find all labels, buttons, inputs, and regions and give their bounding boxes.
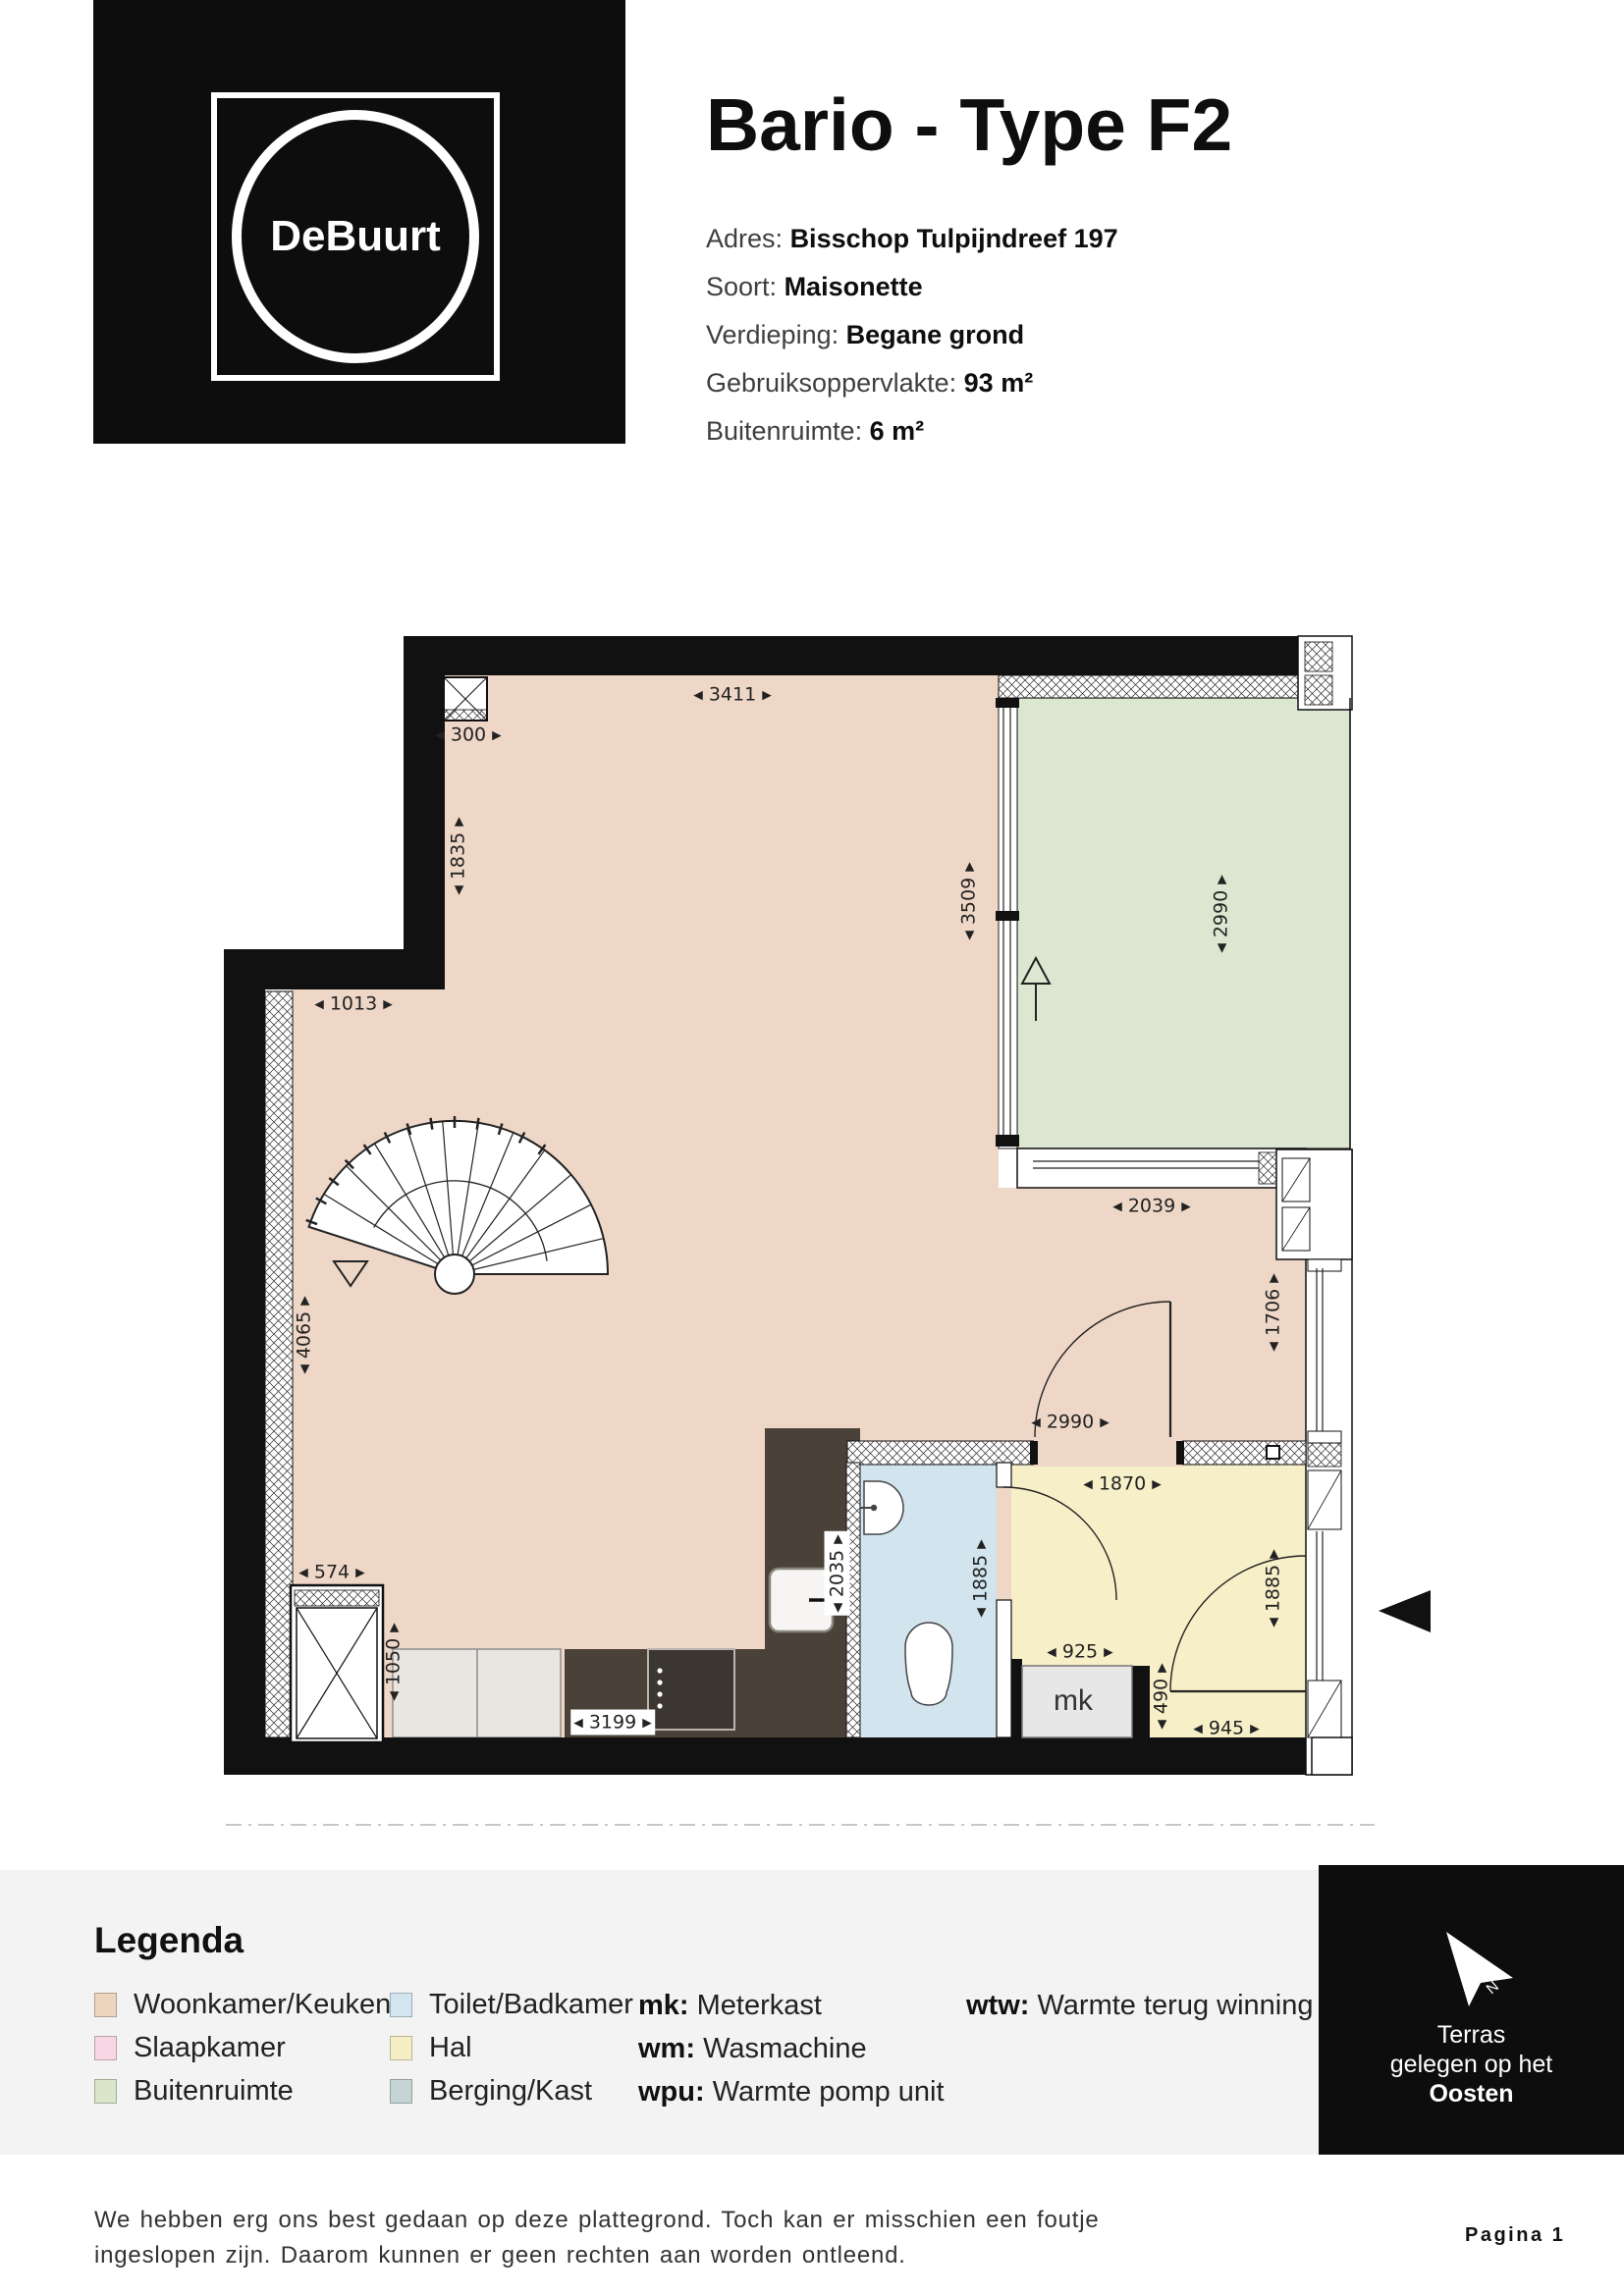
toilet-icon [905,1623,952,1705]
kitchen-cabinets [393,1649,561,1737]
dimension-label: ◂ 1870 ▸ [1083,1473,1162,1495]
dimension-label: ◂ 1013 ▸ [314,993,393,1015]
dimension-label: ◂ 300 ▸ [435,724,502,746]
legend-swatch [390,1993,412,2017]
legend-item-berging: Berging/Kast [390,2074,592,2108]
page-number: Pagina 1 [1465,2224,1565,2247]
orientation-text: Terras gelegen op het Oosten [1319,2020,1624,2109]
dimension-label: ◂ 3199 ▸ [570,1710,655,1735]
svg-text:◂ 490 ▸: ◂ 490 ▸ [1151,1663,1172,1730]
dimension-label: ◂ 1885 ▸ [970,1539,992,1618]
legend-item-slaapkamer: Slaapkamer [94,2031,286,2064]
dimension-label: ◂ 490 ▸ [1151,1663,1172,1730]
legend-abbr-wpu: wpu: Warmte pomp unit [638,2076,945,2109]
svg-text:◂ 1885 ▸: ◂ 1885 ▸ [1263,1549,1284,1628]
legend-item-buitenruimte: Buitenruimte [94,2074,294,2108]
legend-swatch [94,2036,117,2060]
shaft-top-left [444,677,487,721]
svg-text:◂ 1885 ▸: ◂ 1885 ▸ [970,1539,992,1618]
entrance-arrow-icon [1379,1590,1431,1632]
dimension-label: ◂ 2035 ▸ [825,1531,850,1616]
orientation-box: N Terras gelegen op het Oosten [1319,1865,1624,2155]
legend-abbr-wtw: wtw: Warmte terug winning [966,1990,1313,2022]
floorplan-sheet: { "header": { "logo_text": "DeBuurt", "t… [0,0,1624,2296]
terrace-bottom-window [1017,1148,1306,1188]
svg-text:◂ 1835 ▸: ◂ 1835 ▸ [448,817,469,895]
legend-swatch [390,2036,412,2060]
legend-swatch [94,1993,117,2017]
svg-text:◂ 2990 ▸: ◂ 2990 ▸ [1211,875,1232,953]
svg-text:◂ 4065 ▸: ◂ 4065 ▸ [294,1296,315,1374]
interior-wall [847,1439,1306,1467]
legend-item-toilet: Toilet/Badkamer [390,1988,633,2021]
bathroom-sink-icon [860,1481,903,1534]
cooktop-icon [648,1649,734,1730]
shaft-bottom-left [291,1585,383,1742]
svg-text:◂ 2035 ▸: ◂ 2035 ▸ [827,1534,848,1613]
svg-text:◂ 3411 ▸: ◂ 3411 ▸ [693,684,772,706]
svg-text:◂ 1706 ▸: ◂ 1706 ▸ [1263,1273,1284,1352]
dimension-label: ◂ 945 ▸ [1193,1718,1260,1739]
dimension-label: ◂ 2990 ▸ [1031,1412,1110,1433]
dimension-label: ◂ 4065 ▸ [294,1296,315,1374]
legend-swatch [390,2079,412,2104]
corner-window-top-right [1298,636,1352,710]
legend-abbr-wm: wm: Wasmachine [638,2033,867,2065]
meterkast-label: mk [1054,1684,1094,1717]
svg-text:◂ 945 ▸: ◂ 945 ▸ [1193,1718,1260,1739]
disclaimer: We hebben erg ons best gedaan op deze pl… [94,2203,1100,2273]
svg-text:◂ 2990 ▸: ◂ 2990 ▸ [1031,1412,1110,1433]
svg-text:◂ 3509 ▸: ◂ 3509 ▸ [958,862,980,940]
dimension-label: ◂ 1835 ▸ [448,817,469,895]
legend-swatch [94,2079,117,2104]
svg-text:◂ 574 ▸: ◂ 574 ▸ [298,1562,365,1583]
legend-abbr-mk: mk: Meterkast [638,1990,822,2022]
svg-text:◂ 3199 ▸: ◂ 3199 ▸ [573,1712,652,1734]
dimension-label: ◂ 2039 ▸ [1112,1196,1191,1217]
dimension-label: ◂ 3411 ▸ [693,684,772,706]
north-arrow-icon: N [1319,1865,1624,2012]
svg-text:◂ 300 ▸: ◂ 300 ▸ [435,724,502,746]
dimension-label: ◂ 3509 ▸ [958,862,980,940]
dimension-label: ◂ 2990 ▸ [1211,875,1232,953]
svg-text:◂ 1050 ▸: ◂ 1050 ▸ [383,1623,405,1701]
svg-text:◂ 2039 ▸: ◂ 2039 ▸ [1112,1196,1191,1217]
dimension-label: ◂ 925 ▸ [1047,1641,1113,1663]
dimension-label: ◂ 1706 ▸ [1263,1273,1284,1352]
dimension-label: ◂ 574 ▸ [298,1562,365,1583]
svg-text:◂ 1013 ▸: ◂ 1013 ▸ [314,993,393,1015]
dimension-label: ◂ 1885 ▸ [1263,1549,1284,1628]
legend-item-hal: Hal [390,2031,472,2064]
legend-title: Legenda [94,1920,244,1961]
legend-item-woonkamer: Woonkamer/Keuken [94,1988,391,2021]
svg-text:◂ 1870 ▸: ◂ 1870 ▸ [1083,1473,1162,1495]
dimension-label: ◂ 1050 ▸ [383,1623,405,1701]
terrace-glass-wall [996,698,1019,1148]
svg-text:◂ 925 ▸: ◂ 925 ▸ [1047,1641,1113,1663]
room-terrace [1017,698,1350,1148]
